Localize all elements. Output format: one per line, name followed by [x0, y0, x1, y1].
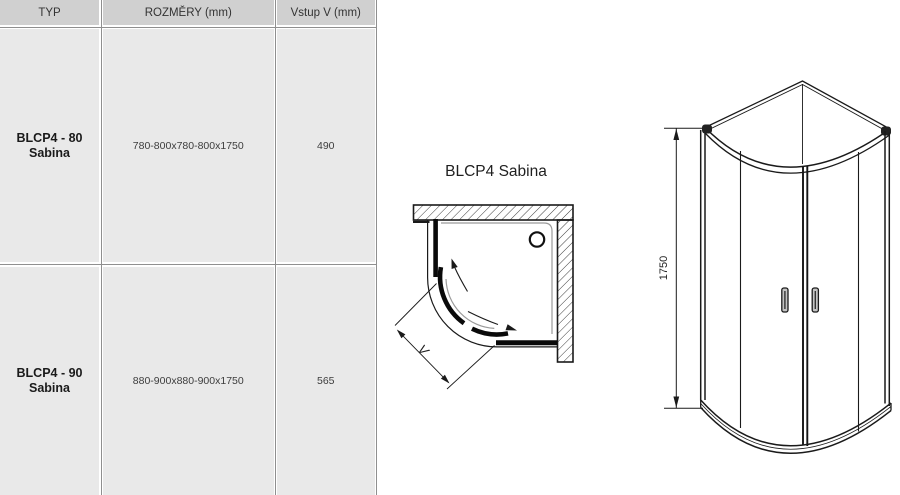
table-row-1-type: BLCP4 - 80 Sabina [0, 29, 99, 262]
spec-table: TYP ROZMĚRY (mm) Vstup V (mm) BLCP4 - 80… [0, 0, 377, 495]
table-grid-line [275, 0, 277, 495]
col-header-rozmery: ROZMĚRY (mm) [103, 0, 274, 25]
extension-line [447, 346, 495, 390]
top-face-inner-edges [708, 85, 887, 132]
type-name: BLCP4 - 90 [17, 366, 83, 381]
sliding-door-1 [440, 267, 464, 323]
table-row-2-dimensions: 880-900x880-900x1750 [103, 267, 274, 495]
extension-line [395, 284, 437, 326]
type-name: BLCP4 - 80 [17, 131, 83, 146]
type-series: Sabina [29, 381, 70, 396]
top-view-title: BLCP4 Sabina [445, 163, 547, 180]
table-row-1-entry: 490 [277, 29, 375, 262]
tray-front-edge [446, 279, 494, 328]
arrowhead-icon [452, 259, 458, 270]
col-header-typ: TYP [0, 0, 99, 25]
top-rail-outer [705, 128, 890, 168]
top-view-drawing: BLCP4 Sabina V [385, 150, 605, 450]
arrowhead-icon [673, 397, 679, 408]
type-series: Sabina [29, 146, 70, 161]
corner-cap-left [702, 125, 712, 134]
arrowhead-icon [506, 324, 518, 330]
col-header-vstup: Vstup V (mm) [277, 0, 375, 25]
height-dimension-label: 1750 [658, 256, 670, 280]
front-view-drawing: 1750 [655, 60, 900, 470]
arrowhead-icon [673, 129, 679, 140]
table-row-2-entry: 565 [277, 267, 375, 495]
table-grid-line [0, 264, 377, 266]
wall-top [414, 205, 574, 220]
table-grid-line [0, 27, 377, 29]
top-face-edges [705, 81, 890, 129]
table-grid-line [376, 0, 378, 495]
table-row-1-dimensions: 780-800x780-800x1750 [103, 29, 274, 262]
wall-right [558, 220, 574, 362]
door-motion-arrow-up [455, 268, 468, 292]
table-grid-line [101, 0, 103, 495]
table-row-2-type: BLCP4 - 90 Sabina [0, 267, 99, 495]
dimension-line-v [398, 331, 449, 383]
page: TYP ROZMĚRY (mm) Vstup V (mm) BLCP4 - 80… [0, 0, 900, 495]
bottom-rail-upper [701, 400, 891, 446]
sliding-door-2 [472, 329, 508, 335]
drain-icon [530, 232, 544, 246]
